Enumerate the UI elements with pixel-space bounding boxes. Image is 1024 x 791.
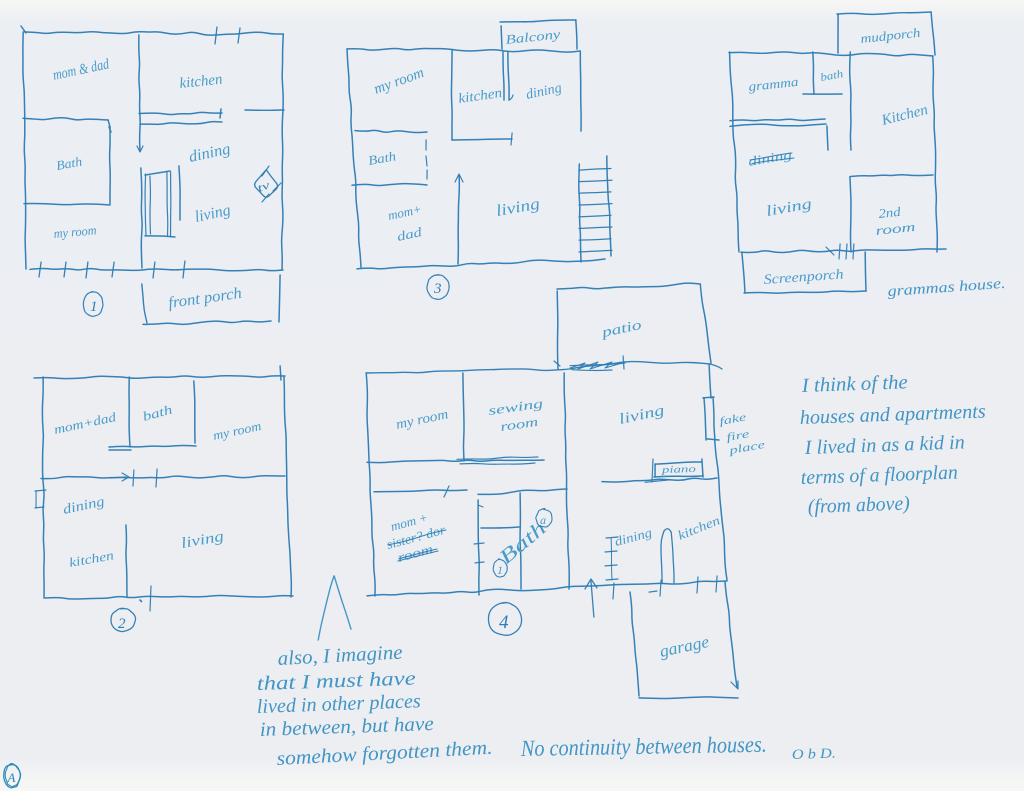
svg-text:(from above): (from above) [807, 492, 910, 518]
svg-text:a: a [540, 513, 546, 527]
svg-text:A: A [7, 770, 16, 785]
svg-text:4: 4 [499, 612, 509, 633]
svg-text:O b D.: O b D. [792, 746, 836, 763]
svg-text:3: 3 [433, 281, 442, 297]
svg-text:No continuity between houses.: No continuity between houses. [520, 732, 767, 761]
svg-text:1: 1 [497, 563, 503, 577]
svg-text:I think of the: I think of the [800, 371, 908, 397]
svg-text:1: 1 [90, 299, 98, 315]
svg-text:2: 2 [118, 616, 126, 632]
svg-text:piano: piano [660, 464, 696, 476]
svg-text:2nd: 2nd [878, 204, 902, 221]
